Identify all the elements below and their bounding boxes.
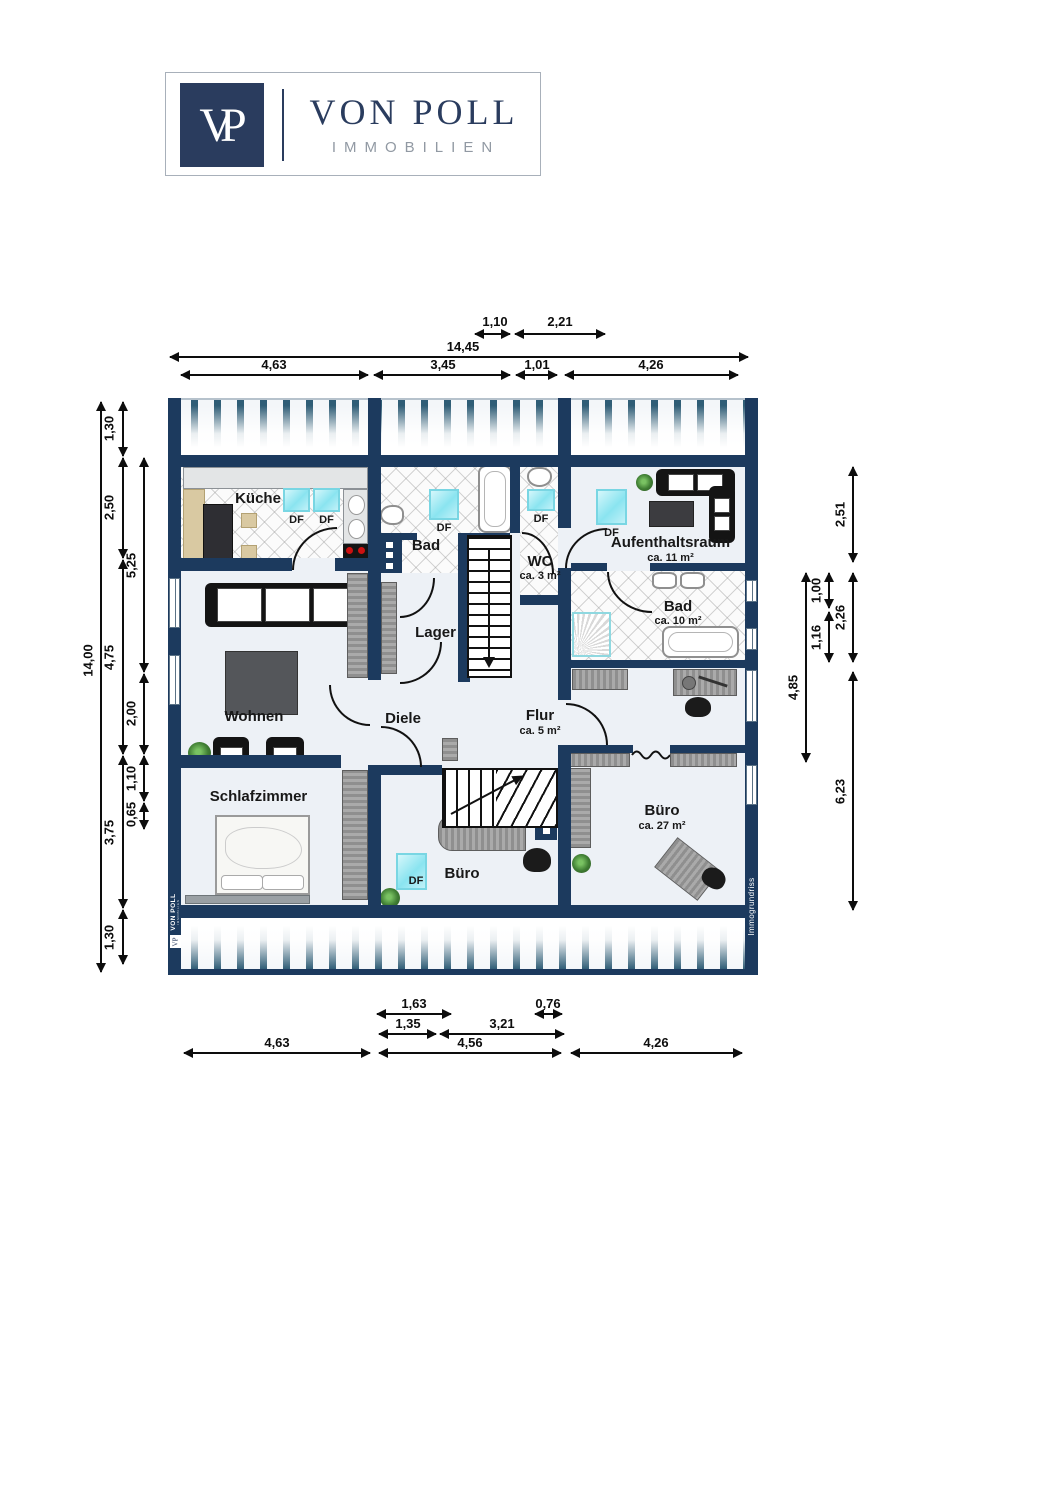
bed — [215, 815, 310, 895]
dim-bottom-076: 0,76 — [524, 996, 572, 1011]
kitchen-sink-counter — [343, 489, 368, 544]
dim-line — [184, 1052, 370, 1054]
wall-segment — [650, 563, 745, 571]
dim-left-475: 4,75 — [102, 634, 117, 682]
desk — [572, 669, 628, 690]
door-arc-flur — [566, 703, 608, 745]
window — [746, 580, 757, 602]
dim-bottom-426: 4,26 — [632, 1035, 680, 1050]
room-area-bad-rechts: ca. 10 m² — [646, 615, 710, 627]
window — [746, 628, 757, 650]
sofa — [205, 583, 370, 627]
dim-line — [143, 458, 145, 672]
dim-line — [852, 573, 854, 662]
dim-left-250: 2,50 — [102, 484, 117, 532]
wall-segment — [670, 745, 745, 753]
window — [746, 670, 757, 722]
wall-watermark-brand-sub: IMMOBILIEN — [177, 899, 180, 925]
dim-top-110: 1,10 — [473, 314, 517, 329]
dim-right-251: 2,51 — [833, 491, 848, 539]
wall-segment — [558, 745, 571, 905]
dresser — [185, 895, 310, 904]
wall-segment — [335, 558, 368, 571]
logo-subtitle: IMMOBILIEN — [300, 139, 532, 156]
door-arc-lager — [400, 642, 442, 684]
wall-watermark-immogrundriss-text: Immogrundriss — [748, 877, 757, 935]
sketch-wall-squiggle — [631, 747, 670, 761]
cabinet — [442, 738, 458, 761]
room-area-wc: ca. 3 m² — [508, 570, 572, 582]
wall-segment — [571, 660, 745, 668]
room-area-aufenthaltsraum: ca. 11 m² — [613, 552, 728, 564]
wall-watermark-vp-text: VP — [171, 937, 179, 946]
floorplan: DF DF Küche DF Bad DF WC ca. 3 m² DF Auf… — [168, 398, 758, 975]
room-area-flur: ca. 5 m² — [510, 725, 570, 737]
room-label-buero-rechts: Büro — [632, 802, 692, 819]
window — [746, 765, 757, 805]
bathtub-inner — [484, 471, 506, 527]
bathtub — [662, 626, 739, 658]
bathtub-inner — [668, 632, 733, 652]
wardrobe — [381, 582, 397, 674]
office-chair — [523, 848, 551, 872]
tv-table — [649, 501, 694, 527]
dim-line — [181, 374, 368, 376]
wall-segment — [181, 558, 292, 571]
window — [169, 578, 180, 628]
dim-line — [565, 374, 738, 376]
wall-top — [168, 455, 758, 467]
door-arc-bad-top — [400, 578, 435, 618]
dim-line — [852, 467, 854, 562]
dim-bottom-163: 1,63 — [390, 996, 438, 1011]
dim-top-345: 3,45 — [419, 357, 467, 372]
dim-top-1445: 14,45 — [433, 339, 493, 354]
wall-segment — [571, 745, 633, 753]
dim-line — [379, 1052, 561, 1054]
skylight — [313, 488, 340, 512]
wardrobe — [342, 770, 368, 900]
vp-monogram-icon: VP — [180, 83, 264, 167]
logo-divider — [282, 89, 284, 161]
wall-watermark-immogrundriss: Immogrundriss — [746, 868, 758, 945]
sideboard — [670, 753, 737, 767]
wall-segment — [558, 398, 571, 528]
dim-line — [122, 910, 124, 964]
wall-segment — [181, 755, 341, 768]
dim-line — [475, 333, 510, 335]
dim-line — [379, 1033, 436, 1035]
wall-watermark-vp-icon: VP — [170, 935, 181, 948]
washbasin — [652, 572, 677, 589]
door-arc-diele-right — [381, 726, 422, 767]
stairs-down-arrow — [488, 548, 490, 658]
kitchen-table — [203, 504, 233, 560]
dim-line — [122, 402, 124, 456]
skylight-label: DF — [527, 513, 555, 525]
duvet-fold — [225, 827, 302, 869]
desk-with-lamp — [673, 669, 737, 696]
skylight — [429, 489, 459, 520]
office-chair — [685, 697, 711, 717]
dim-line — [805, 573, 807, 762]
logo-name: VON POLL — [298, 91, 530, 133]
kitchen-counter — [183, 467, 368, 489]
dim-line — [515, 333, 605, 335]
plant-icon — [572, 854, 591, 873]
skylight-label: DF — [404, 875, 428, 887]
dim-top-221: 2,21 — [536, 314, 584, 329]
wall-bottom — [168, 905, 758, 918]
dim-bottom-135: 1,35 — [384, 1016, 432, 1031]
room-area-buero-rechts: ca. 27 m² — [630, 820, 694, 832]
dim-line — [828, 612, 830, 662]
sink-bowl — [348, 519, 365, 539]
skylight-label: DF — [429, 522, 459, 534]
dim-line — [516, 374, 557, 376]
desk-lamp-arm — [698, 675, 727, 687]
chair — [241, 513, 257, 528]
roof-hatch-top — [168, 398, 758, 456]
stairs-lower — [442, 768, 558, 828]
dim-left-525: 5,25 — [124, 542, 139, 590]
dim-bottom-321: 3,21 — [478, 1016, 526, 1031]
plant-icon — [636, 474, 653, 491]
wall-segment — [558, 568, 571, 700]
dim-left-130-bottom: 1,30 — [102, 914, 117, 962]
dim-line — [374, 374, 510, 376]
dim-line — [571, 1052, 742, 1054]
stairs-treads — [444, 770, 496, 826]
dim-left-065: 0,65 — [124, 791, 139, 839]
floorplan-page: VP VON POLL IMMOBILIEN 1,10 2,21 14,45 4… — [0, 0, 1060, 1500]
toilet — [380, 505, 404, 525]
stairs-winders — [496, 770, 556, 826]
dim-line — [852, 672, 854, 910]
room-label-bad-top: Bad — [396, 537, 456, 554]
sink-bowl — [348, 495, 365, 515]
room-label-buero-mitte: Büro — [432, 865, 492, 882]
room-label-wc: WC — [518, 553, 562, 570]
wall-segment — [510, 455, 520, 533]
table — [225, 651, 298, 715]
dim-bottom-456: 4,56 — [446, 1035, 494, 1050]
dim-left-130-top: 1,30 — [102, 405, 117, 453]
dim-bottom-463: 4,63 — [253, 1035, 301, 1050]
shower — [572, 612, 611, 657]
kitchen-cabinet — [183, 489, 205, 559]
desk-lamp-base — [682, 676, 696, 690]
washbasin — [680, 572, 705, 589]
toilet — [527, 467, 552, 487]
dim-top-426: 4,26 — [627, 357, 675, 372]
room-label-diele: Diele — [370, 710, 436, 727]
room-label-lager: Lager — [408, 624, 463, 641]
wall-watermark-brand: VON POLL IMMOBILIEN — [169, 891, 182, 933]
door-arc-diele-left — [329, 685, 370, 726]
room-label-kueche: Küche — [208, 490, 308, 507]
vonpoll-logo: VP VON POLL IMMOBILIEN — [165, 72, 541, 176]
dim-right-485: 4,85 — [786, 664, 801, 712]
dim-left-1400: 14,00 — [81, 631, 96, 691]
dim-left-375: 3,75 — [102, 809, 117, 857]
pillow — [262, 875, 304, 890]
wall-segment — [368, 765, 381, 905]
dim-right-116: 1,16 — [809, 614, 824, 662]
skylight-label: DF — [313, 514, 340, 526]
roof-hatch-bottom — [168, 917, 758, 975]
wall-segment — [520, 595, 558, 605]
dim-line — [377, 1013, 451, 1015]
dim-line — [828, 573, 830, 608]
sideboard — [565, 753, 630, 767]
room-label-schlafzimmer: Schlafzimmer — [206, 788, 311, 805]
dim-left-200: 2,00 — [124, 690, 139, 738]
wall-segment — [168, 969, 758, 975]
room-label-bad-rechts: Bad — [653, 598, 703, 615]
room-label-flur: Flur — [515, 707, 565, 724]
skylight-label: DF — [283, 514, 310, 526]
room-label-aufenthaltsraum: Aufenthaltsraum — [588, 534, 753, 551]
dim-line — [535, 1013, 562, 1015]
skylight — [527, 489, 555, 511]
bathtub — [478, 465, 512, 533]
dim-right-623: 6,23 — [833, 768, 848, 816]
dim-line — [143, 756, 145, 801]
pillow — [221, 875, 263, 890]
dim-right-226: 2,26 — [833, 594, 848, 642]
skylight — [596, 489, 627, 525]
wardrobe — [347, 573, 368, 678]
dim-line — [143, 803, 145, 829]
dim-top-463: 4,63 — [250, 357, 298, 372]
window — [169, 655, 180, 705]
dim-line — [143, 674, 145, 754]
room-label-wohnen: Wohnen — [214, 708, 294, 725]
